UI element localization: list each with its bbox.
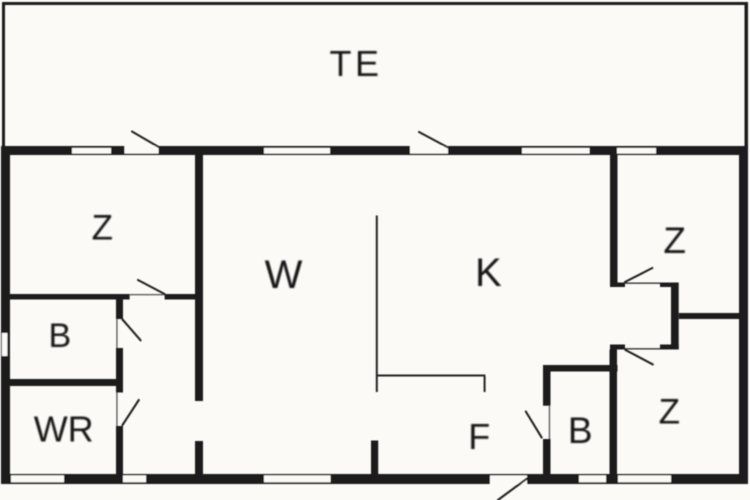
svg-text:B: B — [48, 317, 71, 355]
svg-text:F: F — [468, 416, 490, 457]
svg-text:TE: TE — [329, 43, 382, 84]
svg-text:B: B — [568, 410, 593, 451]
svg-text:K: K — [475, 251, 502, 295]
svg-text:Z: Z — [92, 209, 113, 248]
svg-text:Z: Z — [659, 392, 680, 431]
svg-text:WR: WR — [34, 408, 94, 449]
svg-text:W: W — [265, 253, 303, 297]
svg-text:Z: Z — [663, 220, 686, 261]
